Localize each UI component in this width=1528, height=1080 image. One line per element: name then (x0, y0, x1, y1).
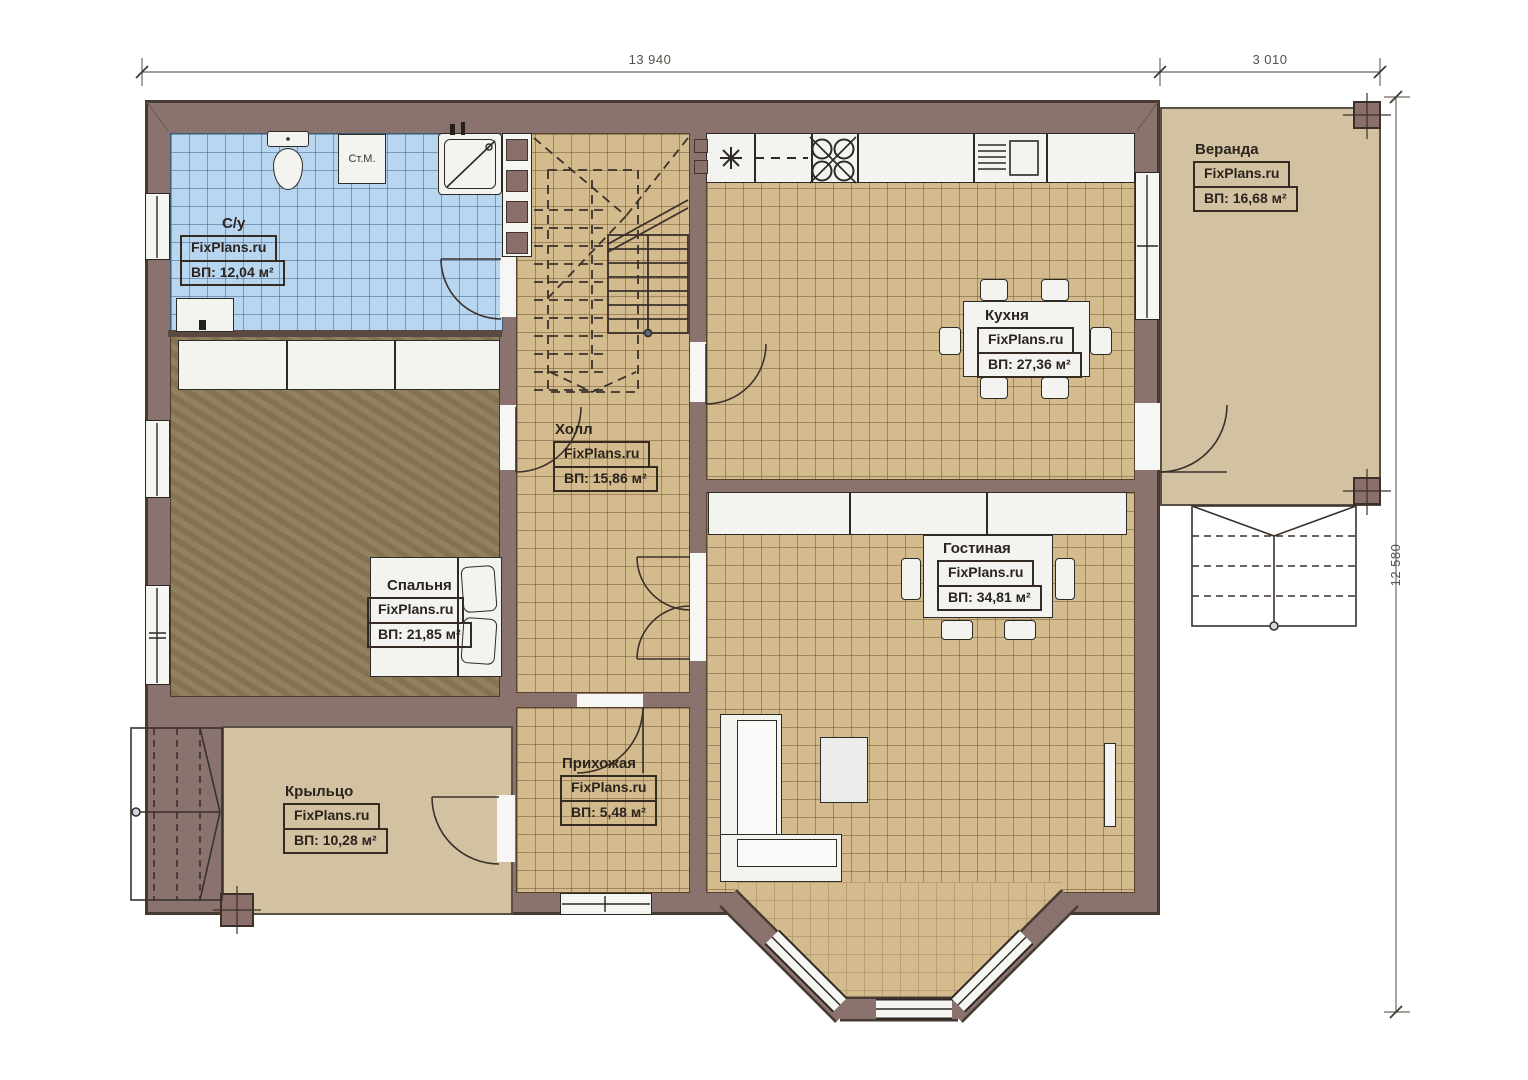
shower-tray (444, 139, 496, 189)
vent-duct-icon (506, 201, 528, 223)
kitchen-counter (706, 133, 1135, 183)
room-name: Холл (555, 422, 658, 437)
room-name: Крыльцо (285, 784, 388, 799)
room-area: ВП: 12,04 м² (180, 260, 285, 287)
counter-cabinet-icon (694, 160, 708, 174)
room-area: ВП: 15,86 м² (553, 466, 658, 493)
counter-divider (1046, 134, 1048, 182)
veranda-door-opening (1135, 403, 1160, 470)
vent-duct-icon (506, 232, 528, 254)
room-label-entry: Прихожая FixPlans.ru ВП: 5,48 м² (560, 756, 657, 826)
room-name: С/у (222, 216, 285, 231)
washing-machine-label: Ст.М. (348, 153, 375, 165)
label-box: FixPlans.ru ВП: 16,68 м² (1193, 161, 1298, 212)
dimension-width-veranda: 3 010 (1222, 52, 1318, 67)
counter-cabinet-icon (694, 139, 708, 153)
room-area: ВП: 27,36 м² (977, 352, 1082, 379)
chair-icon (901, 558, 921, 600)
chair-icon (1004, 620, 1036, 640)
dimension-width-main: 13 940 (600, 52, 700, 67)
counter-divider (857, 134, 859, 182)
room-label-bathroom: С/у FixPlans.ru ВП: 12,04 м² (180, 216, 285, 286)
bathroom-window (145, 193, 170, 260)
label-box: FixPlans.ru ВП: 27,36 м² (977, 327, 1082, 378)
toilet-tank-icon (267, 131, 309, 147)
living-double-door-opening (690, 553, 706, 661)
room-area: ВП: 21,85 м² (367, 622, 472, 649)
room-name: Гостиная (943, 541, 1042, 556)
living-cabinet-row (708, 492, 1127, 535)
label-box: FixPlans.ru ВП: 34,81 м² (937, 560, 1042, 611)
room-area: ВП: 10,28 м² (283, 828, 388, 855)
room-area: ВП: 5,48 м² (560, 800, 657, 827)
watermark: FixPlans.ru (937, 560, 1034, 587)
room-label-veranda: Веранда FixPlans.ru ВП: 16,68 м² (1193, 142, 1298, 212)
label-box: FixPlans.ru ВП: 12,04 м² (180, 235, 285, 286)
entry-hall-door-opening (577, 694, 643, 707)
label-box: FixPlans.ru ВП: 15,86 м² (553, 441, 658, 492)
room-name: Кухня (985, 308, 1082, 323)
label-box: FixPlans.ru ВП: 10,28 м² (283, 803, 388, 854)
chair-icon (1055, 558, 1075, 600)
veranda-steps (1192, 506, 1356, 630)
label-box: FixPlans.ru ВП: 5,48 м² (560, 775, 657, 826)
chair-icon (980, 377, 1008, 399)
room-label-living-room: Гостиная FixPlans.ru ВП: 34,81 м² (937, 541, 1042, 611)
veranda-post-icon (1353, 477, 1381, 505)
chair-icon (980, 279, 1008, 301)
kitchen-door-opening (690, 342, 706, 402)
cabinet-divider (849, 493, 851, 534)
kitchen-window (1135, 172, 1160, 320)
bedroom-window-lower (145, 585, 170, 685)
dimension-height-total: 12 580 (1388, 525, 1404, 605)
wardrobe (178, 340, 500, 390)
vent-duct-icon (506, 139, 528, 161)
bedroom-door-opening (500, 405, 516, 470)
veranda-post-icon (1353, 101, 1381, 129)
tv-icon (1104, 743, 1116, 827)
front-door-opening (497, 795, 515, 862)
shower-faucet-icon (461, 122, 465, 135)
porch-post-icon (220, 893, 254, 927)
watermark: FixPlans.ru (1193, 161, 1290, 188)
room-label-bedroom: Спальня FixPlans.ru ВП: 21,85 м² (367, 578, 472, 648)
wardrobe-divider (394, 341, 396, 389)
chair-icon (1041, 377, 1069, 399)
sofa-seat (737, 839, 837, 867)
chair-icon (941, 620, 973, 640)
room-label-hall: Холл FixPlans.ru ВП: 15,86 м² (553, 422, 658, 492)
watermark: FixPlans.ru (283, 803, 380, 830)
counter-divider (754, 134, 756, 182)
wardrobe-divider (286, 341, 288, 389)
room-label-porch: Крыльцо FixPlans.ru ВП: 10,28 м² (283, 784, 388, 854)
shower-faucet-icon (450, 124, 455, 135)
watermark: FixPlans.ru (367, 597, 464, 624)
vent-duct-icon (506, 170, 528, 192)
floor-plan: Ст.М. (0, 0, 1528, 1080)
watermark: FixPlans.ru (180, 235, 277, 262)
counter-divider (811, 134, 813, 182)
cabinet-divider (986, 493, 988, 534)
room-area: ВП: 34,81 м² (937, 585, 1042, 612)
label-box: FixPlans.ru ВП: 21,85 м² (367, 597, 472, 648)
counter-divider (973, 134, 975, 182)
bedroom-window-upper (145, 420, 170, 498)
room-area: ВП: 16,68 м² (1193, 186, 1298, 213)
chair-icon (1090, 327, 1112, 355)
room-label-kitchen: Кухня FixPlans.ru ВП: 27,36 м² (977, 308, 1082, 378)
entry-window (560, 893, 652, 915)
room-name: Прихожая (562, 756, 657, 771)
sofa-chaise (720, 834, 842, 882)
room-name: Веранда (1195, 142, 1298, 157)
sink-faucet-icon (199, 320, 206, 330)
hall-floor (516, 133, 690, 693)
watermark: FixPlans.ru (560, 775, 657, 802)
coffee-table (820, 737, 868, 803)
chair-icon (939, 327, 961, 355)
watermark: FixPlans.ru (553, 441, 650, 468)
room-name: Спальня (387, 578, 472, 593)
washing-machine-icon: Ст.М. (338, 134, 386, 184)
bathroom-door-opening (500, 257, 516, 317)
watermark: FixPlans.ru (977, 327, 1074, 354)
chair-icon (1041, 279, 1069, 301)
